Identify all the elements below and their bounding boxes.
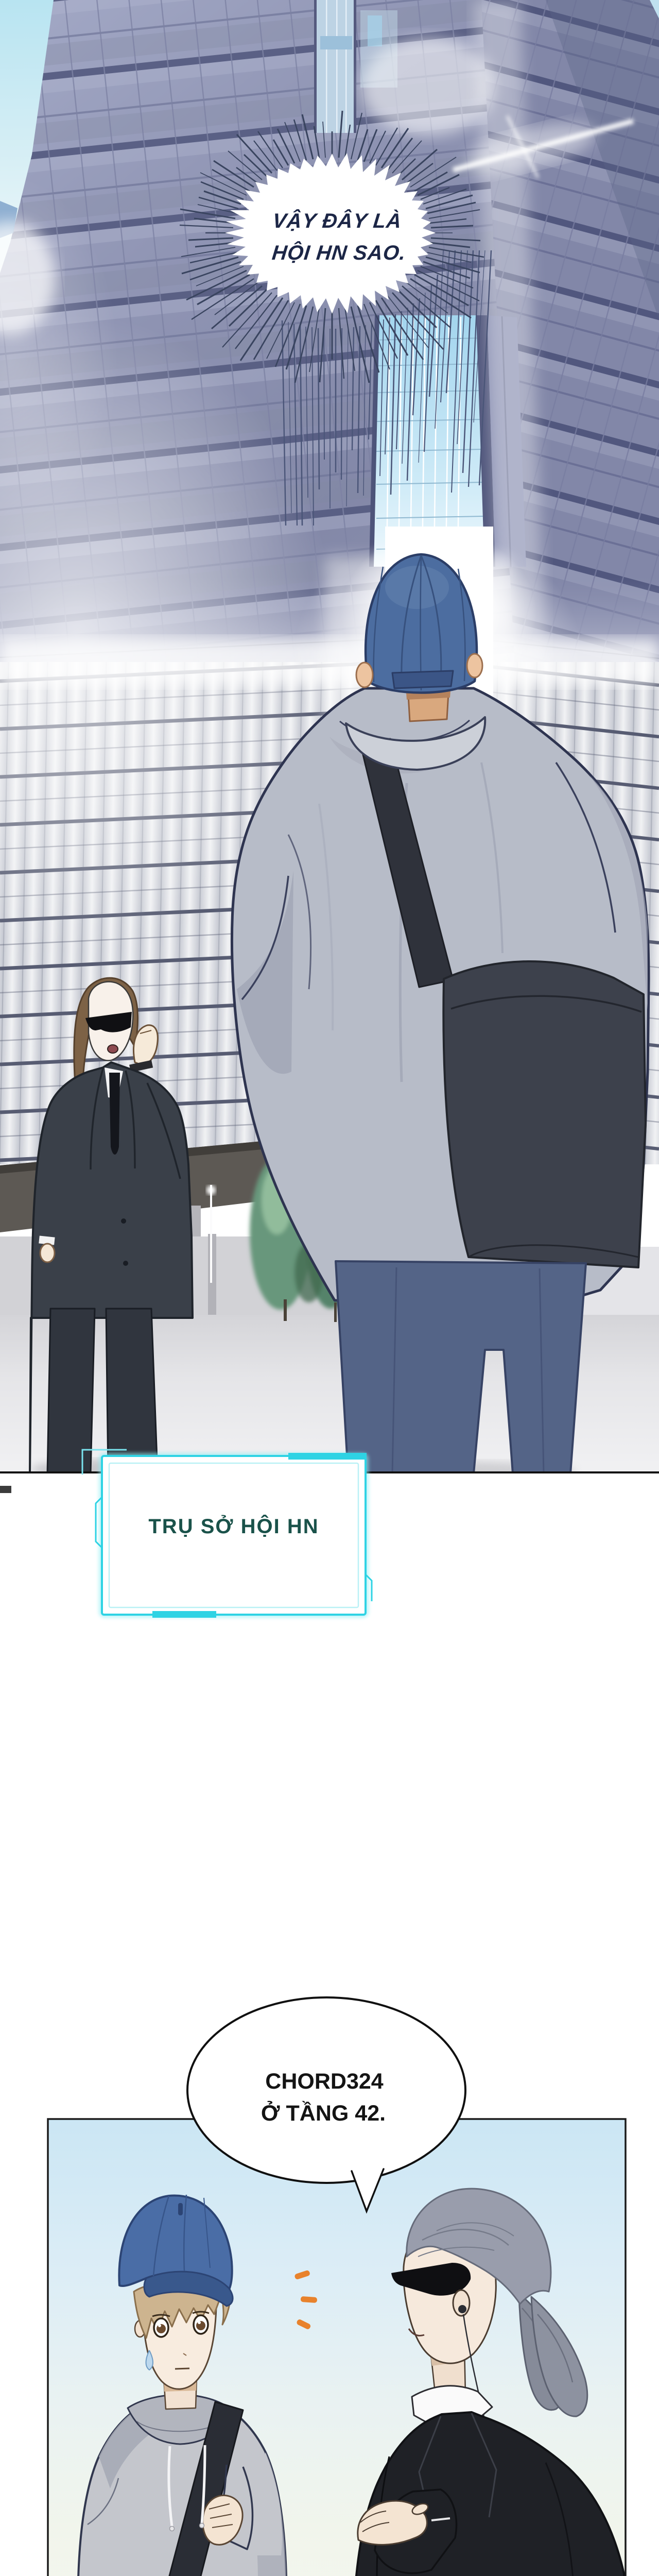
svg-text:TRỤ SỞ HỘI HN: TRỤ SỞ HỘI HN: [148, 1514, 319, 1538]
svg-text:CHORD324: CHORD324: [265, 2069, 383, 2094]
svg-text:HỘI HN SAO.: HỘI HN SAO.: [271, 241, 407, 264]
svg-text:Ở TẦNG 42.: Ở TẦNG 42.: [261, 2100, 386, 2126]
svg-text:VẬY ĐÂY LÀ: VẬY ĐÂY LÀ: [271, 209, 403, 232]
